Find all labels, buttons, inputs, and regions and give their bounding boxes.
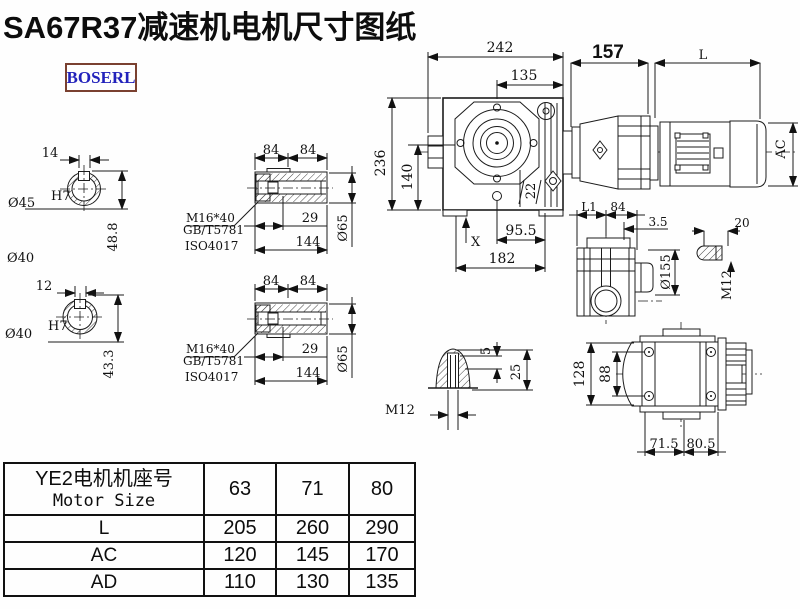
dim-axis-height: 140 [400, 164, 416, 191]
dim-base2: 182 [489, 251, 516, 267]
view-sleeve-1: 84 84 29 144 Ø65 M16*40 GB/T5781 ISO4017 [183, 143, 356, 254]
table-row: AC 120 145 170 [4, 542, 415, 569]
dim-adapter-length: 157 [592, 42, 624, 63]
dim-sleeve2-dia: Ø65 [336, 345, 351, 372]
label-bore-dia-2: Ø40 [5, 327, 32, 342]
table-header-cn: YE2电机机座号 [5, 467, 203, 491]
dim-foot: 22 [524, 183, 539, 200]
view-dome-detail: M12 5 25 [385, 342, 533, 430]
view-shaft-section-1: 14 48.8 Ø45 H7 Ø40 [7, 146, 128, 266]
table-cell: 135 [349, 569, 415, 596]
table-cell: 110 [204, 569, 276, 596]
dim-sleeve2-seg1: 84 [263, 274, 280, 289]
table-cell: 205 [204, 515, 276, 542]
table-row: AD 110 130 135 [4, 569, 415, 596]
dim-sleeve1-depth: 29 [302, 211, 319, 226]
dim-bottom-b2: 80.5 [687, 437, 716, 452]
dim-sleeve1-seg2: 84 [300, 143, 317, 158]
dim-sleeve2-seg2: 84 [300, 274, 317, 289]
note-sleeve1-std2: ISO4017 [185, 239, 238, 253]
dim-dome-t1: 5 [479, 347, 494, 355]
table-cell: 260 [276, 515, 349, 542]
table-cell: 170 [349, 542, 415, 569]
note-sleeve2-std1: GB/T5781 [183, 354, 244, 368]
dim-side-lug: 20 [734, 216, 749, 230]
dim-motor-length: L [699, 48, 708, 63]
table-row-label: L [4, 515, 204, 542]
table-cell: 120 [204, 542, 276, 569]
table-row-label: AC [4, 542, 204, 569]
dim-shaft-height-2: 43.3 [102, 350, 117, 379]
dim-keyway-width-2: 12 [36, 279, 53, 294]
dim-sleeve2-length: 144 [296, 366, 321, 381]
label-side-thread: M12 [720, 270, 735, 300]
drawing-sheet: SA67R37减速机电机尺寸图纸 BOSERL 14 [0, 0, 800, 609]
dim-center-to-face: 135 [511, 68, 538, 84]
dim-side-l1: L1 [581, 200, 597, 214]
dim-side-84: 84 [610, 200, 626, 214]
view-gearbox-side: L1 84 3.5 Ø155 20 M12 [569, 200, 750, 324]
dim-keyway-width-1: 14 [42, 146, 59, 161]
dim-side-flange-dia: Ø155 [659, 254, 674, 289]
label-bore-dia-1: Ø45 [8, 196, 35, 211]
table-cell: 290 [349, 515, 415, 542]
label-x-mark: X [471, 235, 481, 250]
note-sleeve1-std1: GB/T5781 [183, 223, 244, 237]
view-sleeve-2: 84 84 29 144 Ø65 M16*40 GB/T5781 ISO4017 [183, 274, 356, 385]
dim-base1: 95.5 [505, 223, 536, 239]
table-size-col: 80 [349, 463, 415, 515]
note-sleeve2-std2: ISO4017 [185, 370, 238, 384]
dim-sleeve1-dia: Ø65 [336, 214, 351, 241]
view-main-assembly: 242 135 157 L 236 140 22 95.5 [373, 40, 798, 272]
view-shaft-section-2: 12 43.3 Ø40 H7 [5, 279, 124, 378]
table-header-en: Motor Size [5, 491, 203, 511]
dim-bottom-b1: 71.5 [650, 437, 679, 452]
table-header-cell: YE2电机机座号 Motor Size [4, 463, 204, 515]
dim-bottom-h2: 88 [598, 365, 614, 383]
dim-sleeve1-seg1: 84 [263, 143, 280, 158]
motor-size-table: YE2电机机座号 Motor Size 63 71 80 L 205 260 2… [3, 462, 416, 597]
label-bore-tol-2: H7 [48, 319, 68, 334]
table-cell: 145 [276, 542, 349, 569]
table-row-label: AD [4, 569, 204, 596]
view-bottom: 128 88 71.5 80.5 [572, 322, 762, 456]
label-dome-thread: M12 [385, 403, 415, 418]
dim-sleeve1-length: 144 [296, 235, 321, 250]
dim-gearbox-height: 236 [373, 150, 389, 177]
dim-dome-t2: 25 [509, 364, 524, 381]
table-cell: 130 [276, 569, 349, 596]
dim-motor-dia: AC [774, 139, 789, 159]
table-row: L 205 260 290 [4, 515, 415, 542]
label-outer-dia-1: Ø40 [7, 251, 34, 266]
dim-side-offset: 3.5 [648, 215, 667, 229]
dim-shaft-height-1: 48.8 [106, 223, 121, 252]
label-bore-tol-1: H7 [51, 189, 71, 204]
dim-bottom-h1: 128 [572, 361, 588, 388]
table-size-col: 63 [204, 463, 276, 515]
table-size-col: 71 [276, 463, 349, 515]
dim-gearbox-width: 242 [487, 40, 514, 56]
dim-sleeve2-depth: 29 [302, 342, 319, 357]
